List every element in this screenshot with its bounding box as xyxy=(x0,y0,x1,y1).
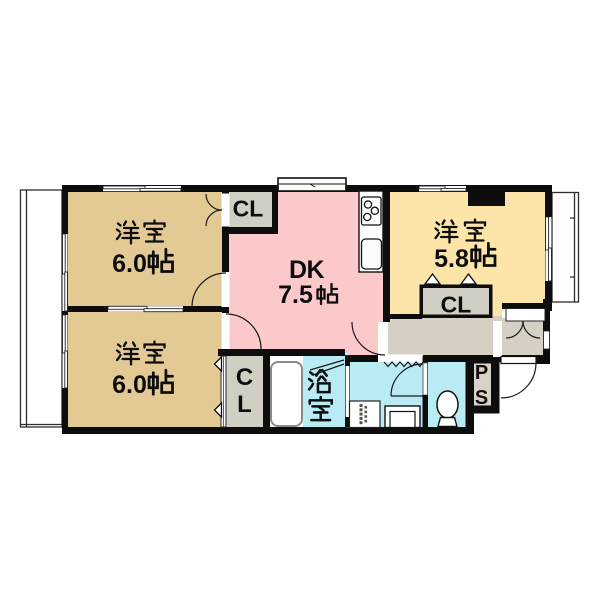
svg-text:L: L xyxy=(237,391,252,418)
svg-text:7.5: 7.5 xyxy=(278,281,313,309)
svg-text:C: C xyxy=(236,364,253,391)
svg-text:6.0: 6.0 xyxy=(112,250,147,278)
svg-text:CL: CL xyxy=(441,292,472,318)
svg-text:5.8: 5.8 xyxy=(434,245,469,273)
svg-text:6.0: 6.0 xyxy=(112,371,147,399)
svg-text:P: P xyxy=(475,362,488,384)
svg-text:DK: DK xyxy=(289,256,325,284)
svg-text:S: S xyxy=(475,387,488,409)
svg-text:CL: CL xyxy=(233,196,264,222)
